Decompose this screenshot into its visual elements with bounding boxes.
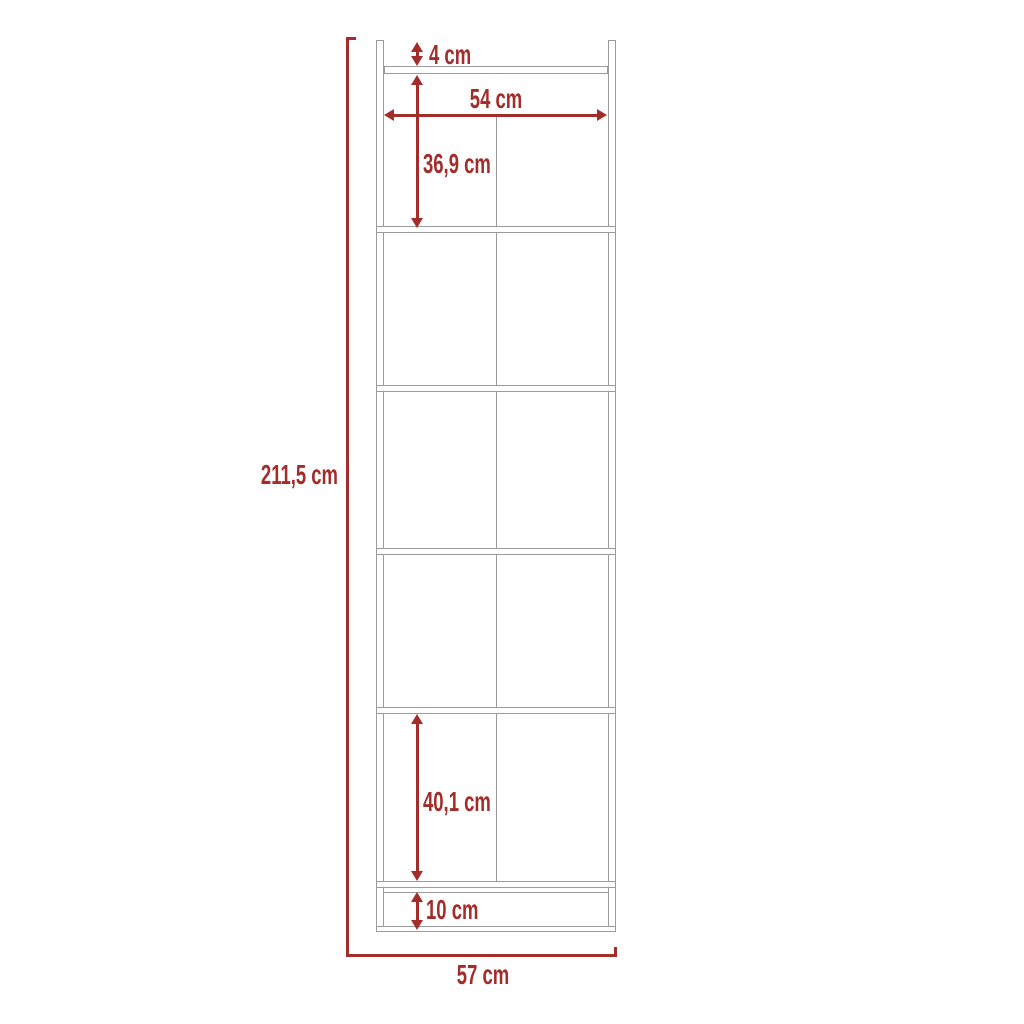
top-section-height-label: 36,9 cm xyxy=(423,151,555,177)
width-extent-line-end-tick xyxy=(614,947,617,957)
width-extent-line xyxy=(346,954,617,957)
arrow-right-icon xyxy=(597,109,607,121)
arrow-down-icon xyxy=(411,56,423,66)
right-side-panel xyxy=(608,40,616,932)
center-divider xyxy=(496,555,497,707)
left-side-panel xyxy=(376,40,384,932)
arrow-down-icon xyxy=(411,218,423,228)
height-extent-line-top-tick xyxy=(346,37,356,40)
shelf-board xyxy=(376,548,616,555)
total-height-label: 211,5 cm xyxy=(206,462,338,488)
shelf-board xyxy=(376,881,616,888)
top-section-height-arrow xyxy=(411,75,423,228)
interior-width-label: 54 cm xyxy=(430,86,562,112)
center-divider xyxy=(496,392,497,548)
shelf-board xyxy=(376,385,616,392)
arrow-down-icon xyxy=(411,920,423,930)
dimension-diagram: 4 cm 54 cm 36,9 cm 211,5 cm 40,1 cm 10 c… xyxy=(0,0,1024,1024)
bottom-section-height-arrow xyxy=(411,714,423,881)
total-width-label: 57 cm xyxy=(417,962,549,988)
base-height-arrow xyxy=(411,892,423,930)
base-height-label: 10 cm xyxy=(426,897,558,923)
center-divider xyxy=(496,233,497,385)
height-extent-line xyxy=(346,37,349,957)
arrow-down-icon xyxy=(411,871,423,881)
top-gap-label: 4 cm xyxy=(429,42,561,68)
bottom-section-height-label: 40,1 cm xyxy=(423,789,555,815)
shelf-board xyxy=(376,707,616,714)
top-gap-arrow xyxy=(411,42,423,66)
